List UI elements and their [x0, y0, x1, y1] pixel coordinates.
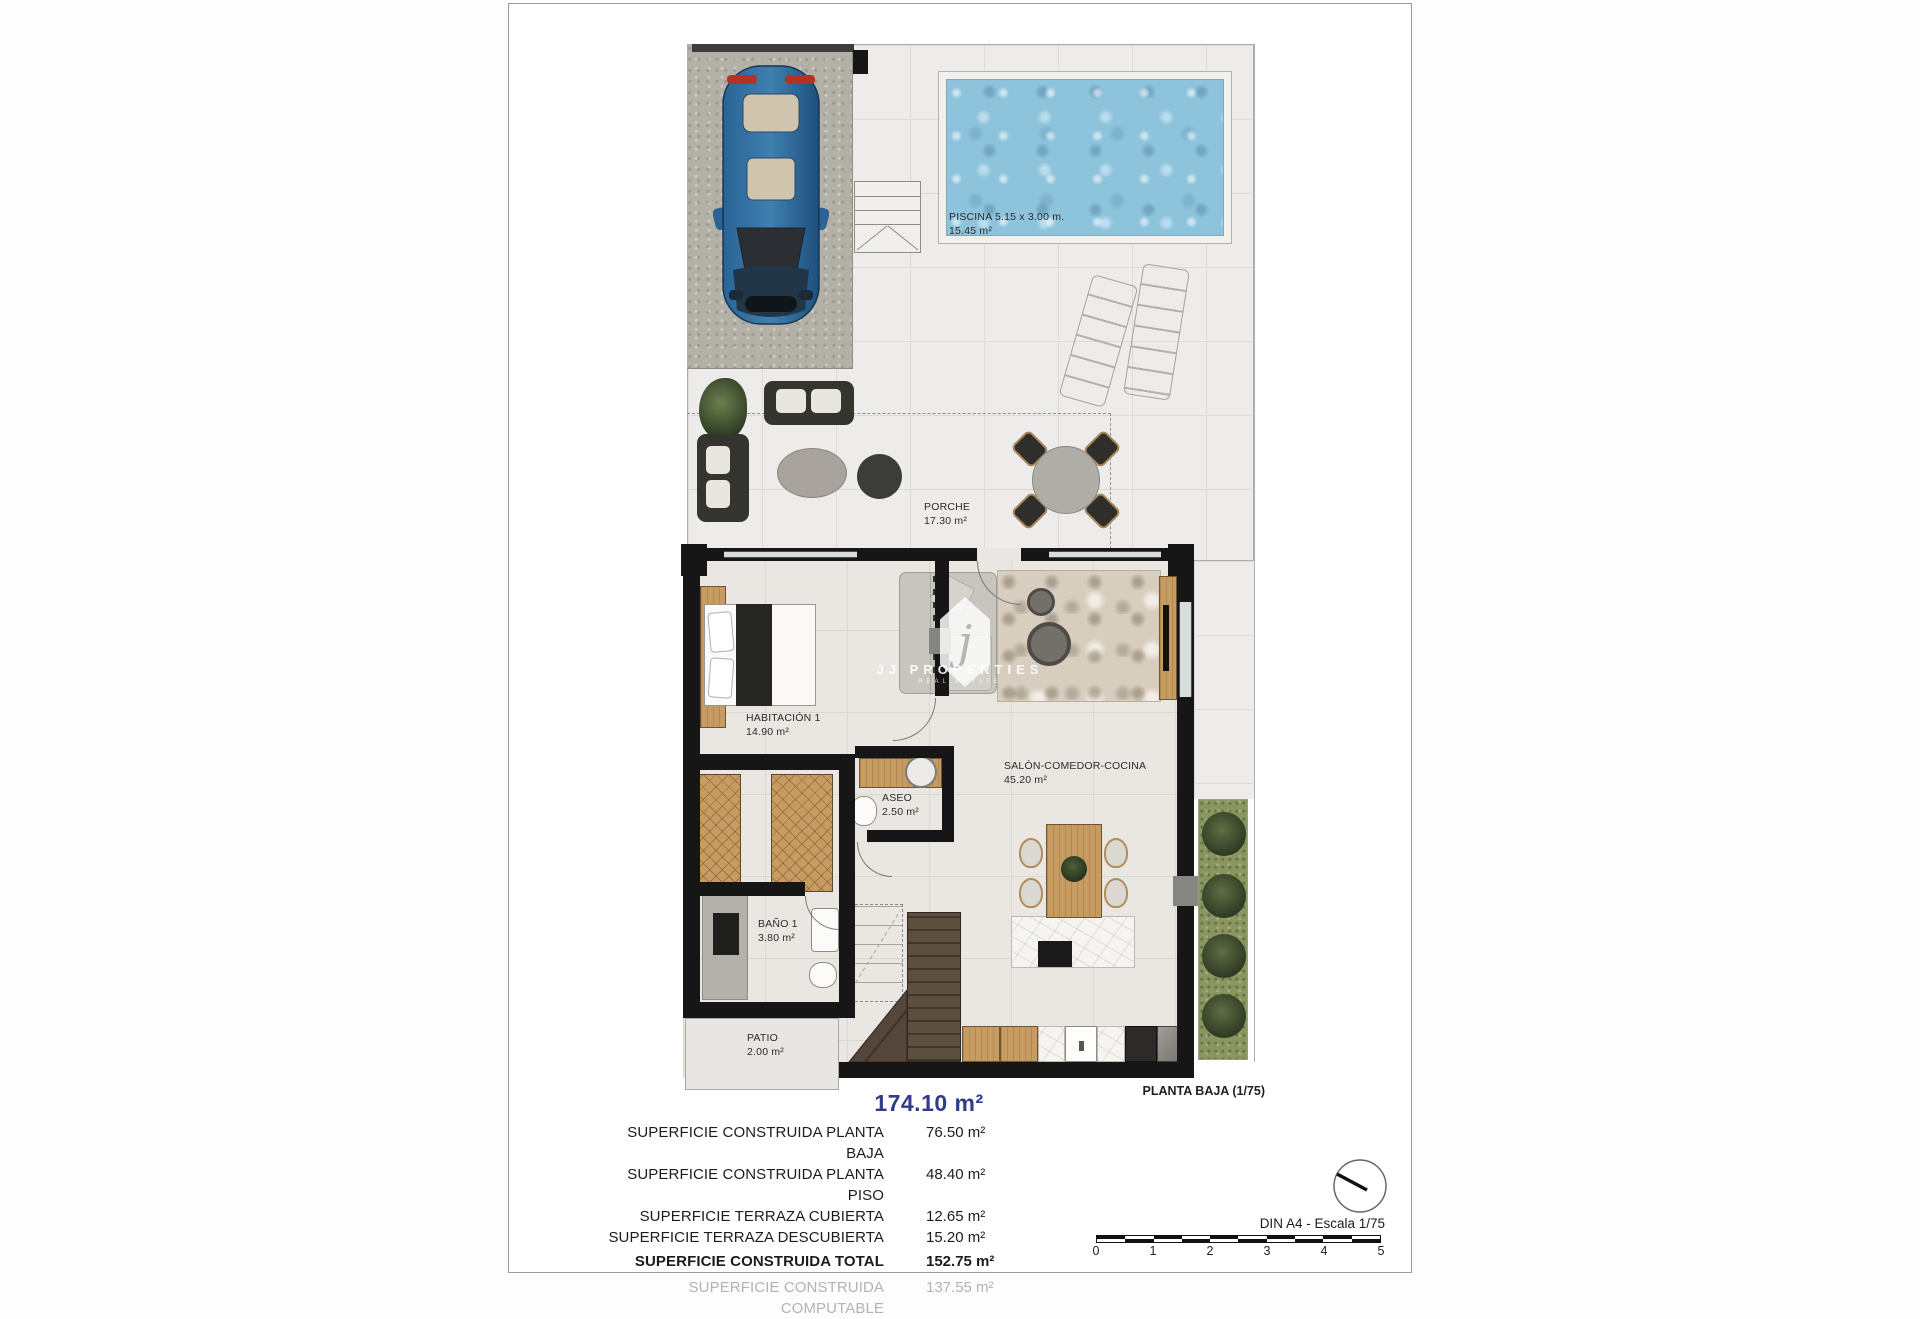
house-left-wall — [683, 548, 700, 1018]
scale-tick: 3 — [1260, 1244, 1274, 1258]
stairs-flight — [907, 912, 961, 1062]
total-area: 174.10 m² — [809, 1090, 1049, 1117]
terrace-top-wall — [692, 44, 854, 52]
kitchen-counter — [962, 1026, 1194, 1062]
window — [1179, 602, 1192, 697]
cabinet — [962, 1026, 1000, 1062]
surface-row-computable: SUPERFICIE CONSTRUIDA COMPUTABLE137.55 m… — [604, 1277, 1066, 1319]
watermark-brand-sub: REAL ESTATE — [875, 679, 1045, 685]
room-label-piscina: PISCINA 5.15 x 3.00 m. 15.45 m² — [949, 211, 1064, 238]
exterior-steps — [854, 181, 921, 253]
dining-chair — [1104, 878, 1128, 908]
closet — [771, 774, 833, 892]
room-label-bano1: BAÑO 1 3.80 m² — [758, 918, 798, 945]
room-label-salon: SALÓN-COMEDOR-COCINA 45.20 m² — [1004, 760, 1146, 787]
porch-round-table — [1032, 446, 1100, 514]
room-label-patio: PATIO 2.00 m² — [747, 1032, 784, 1059]
garden-bush — [1202, 934, 1246, 978]
garden-bush — [1202, 994, 1246, 1038]
round-coffee-table — [1027, 622, 1071, 666]
surface-row: SUPERFICIE CONSTRUIDA PLANTA PISO48.40 m… — [604, 1164, 1066, 1206]
plot-boundary-line — [1254, 44, 1255, 1062]
terrace-pillar — [853, 50, 868, 74]
car-top-view — [713, 62, 829, 328]
scale-tick: 1 — [1146, 1244, 1160, 1258]
porch-coffee-table — [777, 448, 847, 498]
room-label-porche: PORCHE 17.30 m² — [924, 501, 970, 528]
scale-tick: 0 — [1089, 1244, 1103, 1258]
tv-unit — [1159, 576, 1177, 700]
house-bottom-wall — [839, 1062, 1194, 1078]
scale-bar — [1096, 1235, 1381, 1243]
side-passage-floor — [1194, 561, 1254, 799]
kitchen-sink — [1065, 1026, 1097, 1062]
aseo-top-wall — [855, 746, 954, 758]
kitchen-appliance — [1125, 1026, 1157, 1062]
kitchen-island — [1011, 916, 1135, 968]
scale-din-label: DIN A4 - Escala 1/75 — [1209, 1216, 1385, 1231]
watermark-brand: JJ PROPERTIES REAL ESTATE — [875, 662, 1045, 685]
dining-chair — [1104, 838, 1128, 868]
watermark-letter: j — [958, 615, 972, 669]
porch-pouf — [857, 454, 902, 499]
porch-plant — [699, 378, 747, 440]
north-compass-icon — [1331, 1157, 1389, 1215]
scale-tick: 2 — [1203, 1244, 1217, 1258]
porch-armchair — [697, 434, 749, 522]
room-label-aseo: ASEO 2.50 m² — [882, 792, 919, 819]
scale-tick: 5 — [1374, 1244, 1388, 1258]
garden-bush — [1202, 812, 1246, 856]
surface-row: SUPERFICIE TERRAZA DESCUBIERTA15.20 m² — [604, 1227, 1066, 1248]
window — [1049, 551, 1161, 558]
counter-top — [1038, 1026, 1065, 1062]
shower — [702, 894, 748, 1000]
dining-chair — [1019, 878, 1043, 908]
garden-strip — [1198, 799, 1248, 1060]
bed — [704, 604, 816, 706]
bath-toilet — [809, 962, 837, 988]
bath-bottom-wall — [683, 1002, 855, 1018]
counter-top — [1097, 1026, 1125, 1062]
surface-table: SUPERFICIE CONSTRUIDA PLANTA BAJA76.50 m… — [604, 1122, 1066, 1319]
aseo-basin — [905, 756, 937, 788]
aseo-right-wall — [942, 746, 954, 842]
corridor-stairs-wall — [839, 770, 855, 1018]
wall-pillar — [1173, 876, 1198, 906]
porch-sofa — [764, 381, 854, 425]
room-label-habitacion1: HABITACIÓN 1 14.90 m² — [746, 712, 821, 739]
window — [724, 551, 857, 558]
dining-chair — [1019, 838, 1043, 868]
surface-row: SUPERFICIE TERRAZA CUBIERTA12.65 m² — [604, 1206, 1066, 1227]
bath-top-wall — [683, 882, 805, 896]
table-plant — [1061, 856, 1087, 882]
surface-row: SUPERFICIE CONSTRUIDA PLANTA BAJA76.50 m… — [604, 1122, 1066, 1164]
surface-row-total: SUPERFICIE CONSTRUIDA TOTAL152.75 m² — [604, 1251, 1066, 1272]
plan-sheet: PISCINA 5.15 x 3.00 m. 15.45 m² PORCHE 1… — [508, 3, 1412, 1273]
entry-door-gap — [977, 548, 1021, 561]
aseo-bottom-wall — [867, 830, 954, 842]
plan-title: PLANTA BAJA (1/75) — [1109, 1084, 1265, 1098]
garden-bush — [1202, 874, 1246, 918]
bedroom-bottom-wall — [683, 754, 855, 770]
scale-tick: 4 — [1317, 1244, 1331, 1258]
round-side-table — [1027, 588, 1055, 616]
cabinet — [1000, 1026, 1038, 1062]
